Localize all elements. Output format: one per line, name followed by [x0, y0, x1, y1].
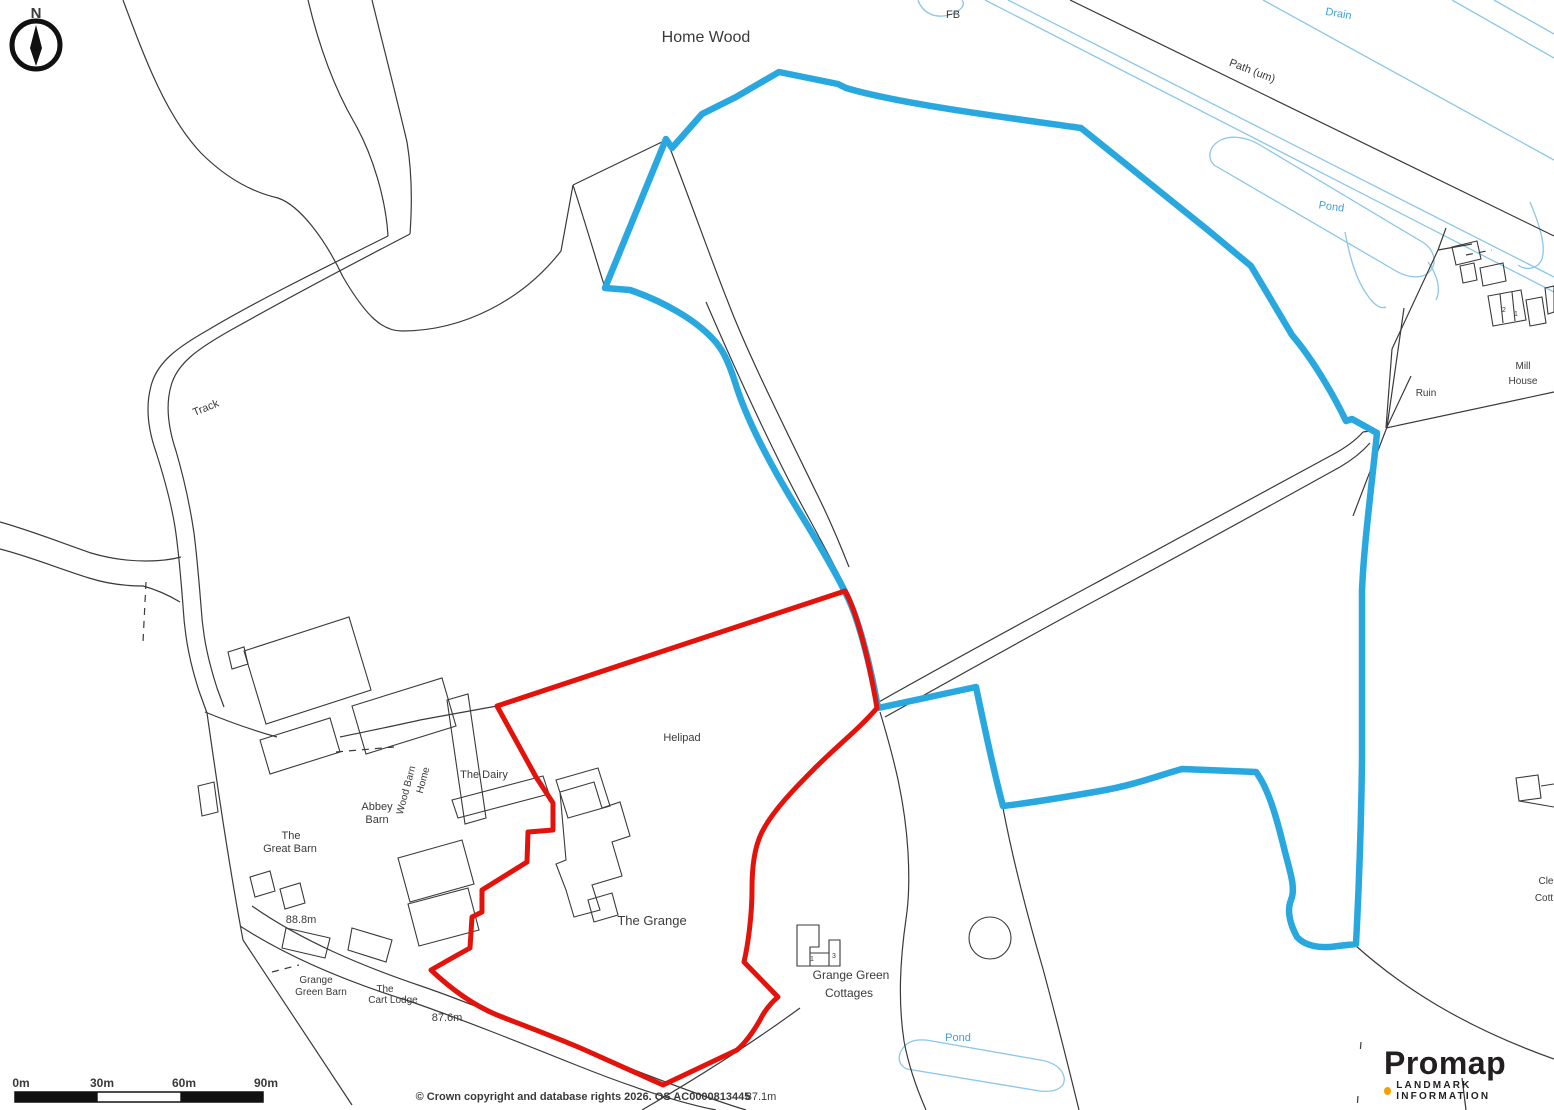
- map-label-scale-tick-0: 0m: [12, 1076, 29, 1090]
- map-label-grange-green-barn-line2: Green Barn: [295, 987, 347, 998]
- map-label-cart-lodge-line1: The: [376, 984, 394, 995]
- map-label-millhouse-no-1: 1: [1514, 311, 1518, 318]
- map-label-spot-height-88-8: 88.8m: [286, 914, 317, 926]
- map-label-attribution: © Crown copyright and database rights 20…: [416, 1091, 751, 1103]
- map-label-millhouse-no-2: 2: [1502, 307, 1506, 314]
- water-lines: [899, 0, 1554, 1091]
- map-label-abbey-barn-line1: Abbey: [361, 801, 393, 813]
- map-label-cottage-no-1: 1: [810, 956, 814, 963]
- map-label-scale-tick-60: 60m: [172, 1076, 196, 1090]
- map-label-home-wood: Home Wood: [662, 29, 751, 46]
- map-label-grange-green-barn-line1: Grange: [299, 975, 333, 986]
- blue-boundary: [605, 72, 1377, 947]
- map-label-track: Track: [191, 397, 221, 418]
- map-label-ruin: Ruin: [1416, 388, 1437, 399]
- map-label-pond-north: Pond: [1318, 199, 1345, 214]
- road-and-field-lines: [0, 0, 1554, 1110]
- map-label-drain: Drain: [1325, 6, 1353, 22]
- map-label-edge-fragment-2: Cott: [1535, 893, 1554, 904]
- map-labels: Home WoodFBDrainPath (um)PondMillHouseRu…: [12, 5, 1554, 1103]
- promap-tagline: LANDMARK INFORMATION: [1396, 1080, 1554, 1102]
- map-label-fb: FB: [946, 9, 960, 21]
- map-label-great-barn-line2: Great Barn: [263, 843, 317, 855]
- map-label-cart-lodge-line2: Cart Lodge: [368, 995, 418, 1006]
- landmark-dot-icon: [1384, 1087, 1391, 1095]
- map-canvas: Home WoodFBDrainPath (um)PondMillHouseRu…: [0, 0, 1554, 1110]
- map-label-abbey-barn-line2: Barn: [365, 814, 388, 826]
- map-label-compass-n: N: [31, 5, 42, 22]
- map-label-cottages-line1: Grange Green: [813, 968, 890, 982]
- map-label-mill-house-line1: Mill: [1516, 361, 1531, 372]
- promap-tagline-row: LANDMARK INFORMATION: [1384, 1080, 1554, 1102]
- map-label-cottage-no-3: 3: [832, 953, 836, 960]
- map-label-scale-tick-30: 30m: [90, 1076, 114, 1090]
- buildings: [198, 241, 1554, 966]
- red-boundary: [431, 591, 877, 1085]
- map-page: Home WoodFBDrainPath (um)PondMillHouseRu…: [0, 0, 1554, 1110]
- map-label-the-dairy: The Dairy: [460, 769, 508, 781]
- map-label-edge-fragment-1: Cle: [1538, 876, 1553, 887]
- promap-logo: Promap LANDMARK INFORMATION: [1384, 1048, 1554, 1102]
- map-label-scale-tick-90: 90m: [254, 1076, 278, 1090]
- map-label-pond-south: Pond: [945, 1032, 971, 1044]
- map-label-mill-house-line2: House: [1509, 376, 1538, 387]
- scale-bar: [15, 1092, 263, 1102]
- map-label-the-grange: The Grange: [617, 913, 686, 928]
- promap-wordmark: Promap: [1384, 1048, 1554, 1078]
- map-label-cottages-line2: Cottages: [825, 986, 873, 1000]
- map-label-great-barn-line1: The: [282, 830, 301, 842]
- north-arrow-icon: [12, 21, 60, 69]
- map-label-helipad: Helipad: [663, 732, 700, 744]
- map-label-spot-height-87-6: 87.6m: [432, 1012, 463, 1024]
- map-label-path-um: Path (um): [1227, 57, 1276, 86]
